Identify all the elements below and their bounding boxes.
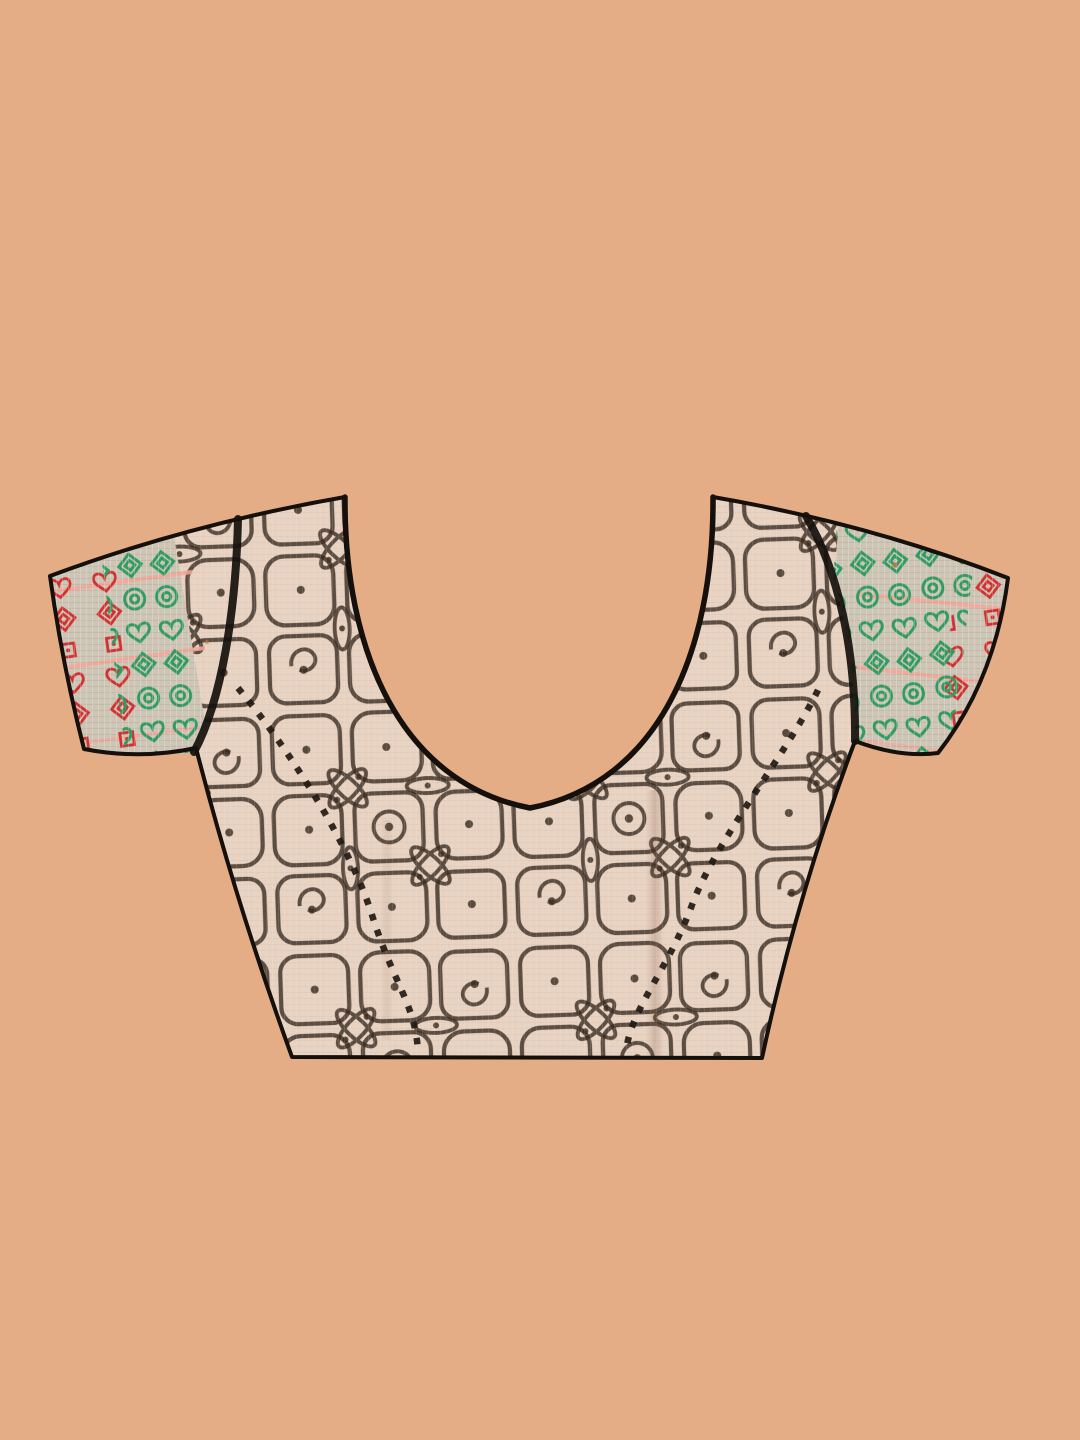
fabric-speck [892,562,897,567]
fabric-crease [646,790,664,1060]
product-photo [0,0,1080,1440]
fabric-crease [380,820,394,1040]
blouse-photo-svg [0,0,1080,1440]
fabric-speck [205,640,209,644]
